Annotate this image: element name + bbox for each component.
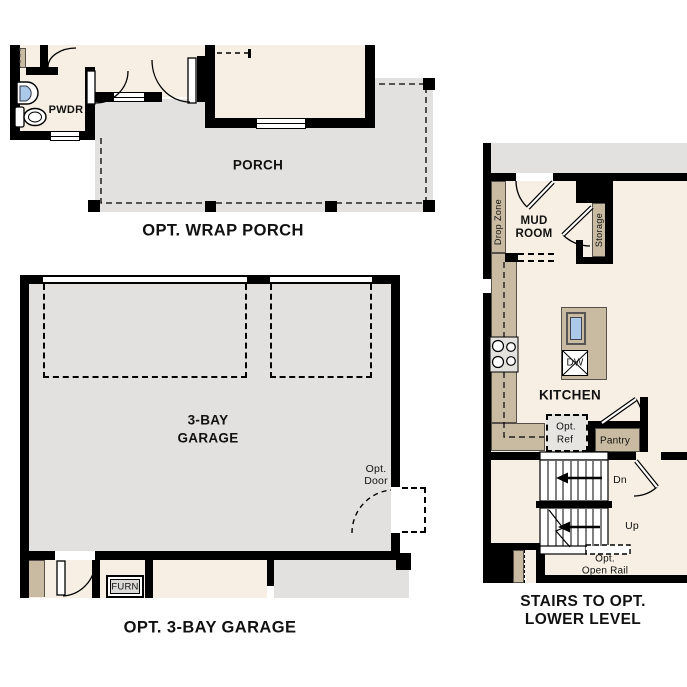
wall-segment	[85, 67, 95, 140]
garage-label-line1: 3-BAY	[188, 413, 229, 428]
wall-segment	[483, 550, 513, 583]
porch-floor-left	[95, 99, 211, 212]
garage-door-header-left	[43, 275, 247, 284]
kitchen-counter-corner	[491, 423, 545, 451]
wall-segment	[605, 203, 613, 257]
garage-caption: OPT. 3-BAY GARAGE	[124, 619, 297, 638]
opt-door-opening	[391, 487, 400, 533]
wall-segment	[661, 452, 687, 460]
sink-basin	[566, 312, 586, 345]
opt-ref-label-line1: Opt.	[556, 422, 576, 433]
open-rail-label-line1: Opt.	[595, 554, 615, 565]
open-rail-label-line2: Open Rail	[582, 566, 628, 577]
wall-segment	[588, 421, 648, 428]
mud-room-label-line2: ROOM	[516, 228, 553, 240]
window	[483, 278, 491, 294]
window	[256, 118, 306, 129]
opt-opening-dashed	[518, 253, 554, 262]
opt-ref-label-line2: Ref	[557, 435, 573, 446]
porch-label: PORCH	[233, 158, 283, 173]
floor-sliver	[526, 550, 536, 583]
furnace-label: FURN	[111, 582, 138, 593]
wall-segment	[576, 181, 613, 203]
wall-segment	[365, 45, 375, 126]
opt-ref-box	[546, 414, 588, 452]
wall-segment	[640, 397, 648, 452]
opt-door-label-line1: Opt.	[366, 463, 387, 475]
porch-post	[88, 200, 100, 212]
wrap-porch-caption: OPT. WRAP PORCH	[142, 222, 304, 241]
powder-label: PWDR	[49, 104, 84, 116]
opt-door-label-line2: Door	[364, 475, 388, 487]
wall-corner	[396, 553, 411, 570]
door-gap	[267, 586, 274, 598]
wall-segment	[536, 501, 612, 508]
upper-room-floor	[210, 45, 370, 128]
drop-zone-label: Drop Zone	[493, 199, 503, 245]
kitchen-counter	[491, 253, 517, 423]
wall-segment	[576, 257, 613, 264]
house-door-opening	[55, 551, 95, 560]
dashed-wall-line	[524, 550, 526, 583]
mud-room-label-line1: MUD	[520, 215, 547, 227]
wall-segment	[483, 143, 491, 583]
porch-floor-right	[373, 78, 433, 212]
mud-door-opening	[516, 173, 553, 181]
garage-door-header-right	[270, 275, 372, 284]
wall-segment	[483, 452, 540, 460]
storage-label: Storage	[594, 213, 604, 247]
wall-segment	[145, 560, 153, 598]
pantry-label: Pantry	[600, 436, 630, 447]
kitchen-label: KITCHEN	[539, 388, 601, 403]
stairs-caption-line1: STAIRS TO OPT.	[520, 593, 646, 611]
garage-bay-left-dashed	[43, 284, 247, 378]
porch-post	[423, 78, 435, 90]
floor-plan: PWDR PORCH OPT. WRAP PORCH 3-BAY GARAGE …	[0, 0, 687, 687]
garage-label-line2: GARAGE	[177, 431, 238, 446]
wall-segment	[588, 421, 595, 452]
lower-tan-strip	[513, 550, 524, 583]
sink-bowl	[570, 317, 582, 340]
up-label: Up	[625, 520, 639, 532]
garage-bay-right-dashed	[270, 284, 372, 378]
dishwasher-label: DW	[566, 358, 583, 369]
lower-gray-floor	[274, 560, 409, 598]
wall-segment	[483, 543, 540, 550]
wall-segment	[483, 173, 687, 181]
wall-segment	[608, 452, 636, 460]
wall-segment	[505, 253, 518, 262]
wall-tick	[248, 49, 251, 58]
window	[50, 131, 80, 141]
wall-segment	[10, 45, 20, 140]
window	[113, 92, 145, 102]
wall-segment	[92, 560, 100, 598]
stairs-caption-line2: LOWER LEVEL	[525, 611, 641, 629]
porch-post	[205, 201, 216, 212]
wall-segment	[536, 550, 545, 583]
porch-post	[325, 201, 337, 212]
wall-segment	[267, 560, 274, 586]
down-label: Dn	[613, 474, 627, 486]
wall-segment	[40, 45, 48, 69]
wall-segment	[205, 45, 215, 128]
lower-tan-cabinet	[27, 560, 45, 597]
porch-post	[423, 200, 435, 212]
garage-edge-floor	[489, 143, 687, 173]
wall-segment	[20, 560, 29, 598]
